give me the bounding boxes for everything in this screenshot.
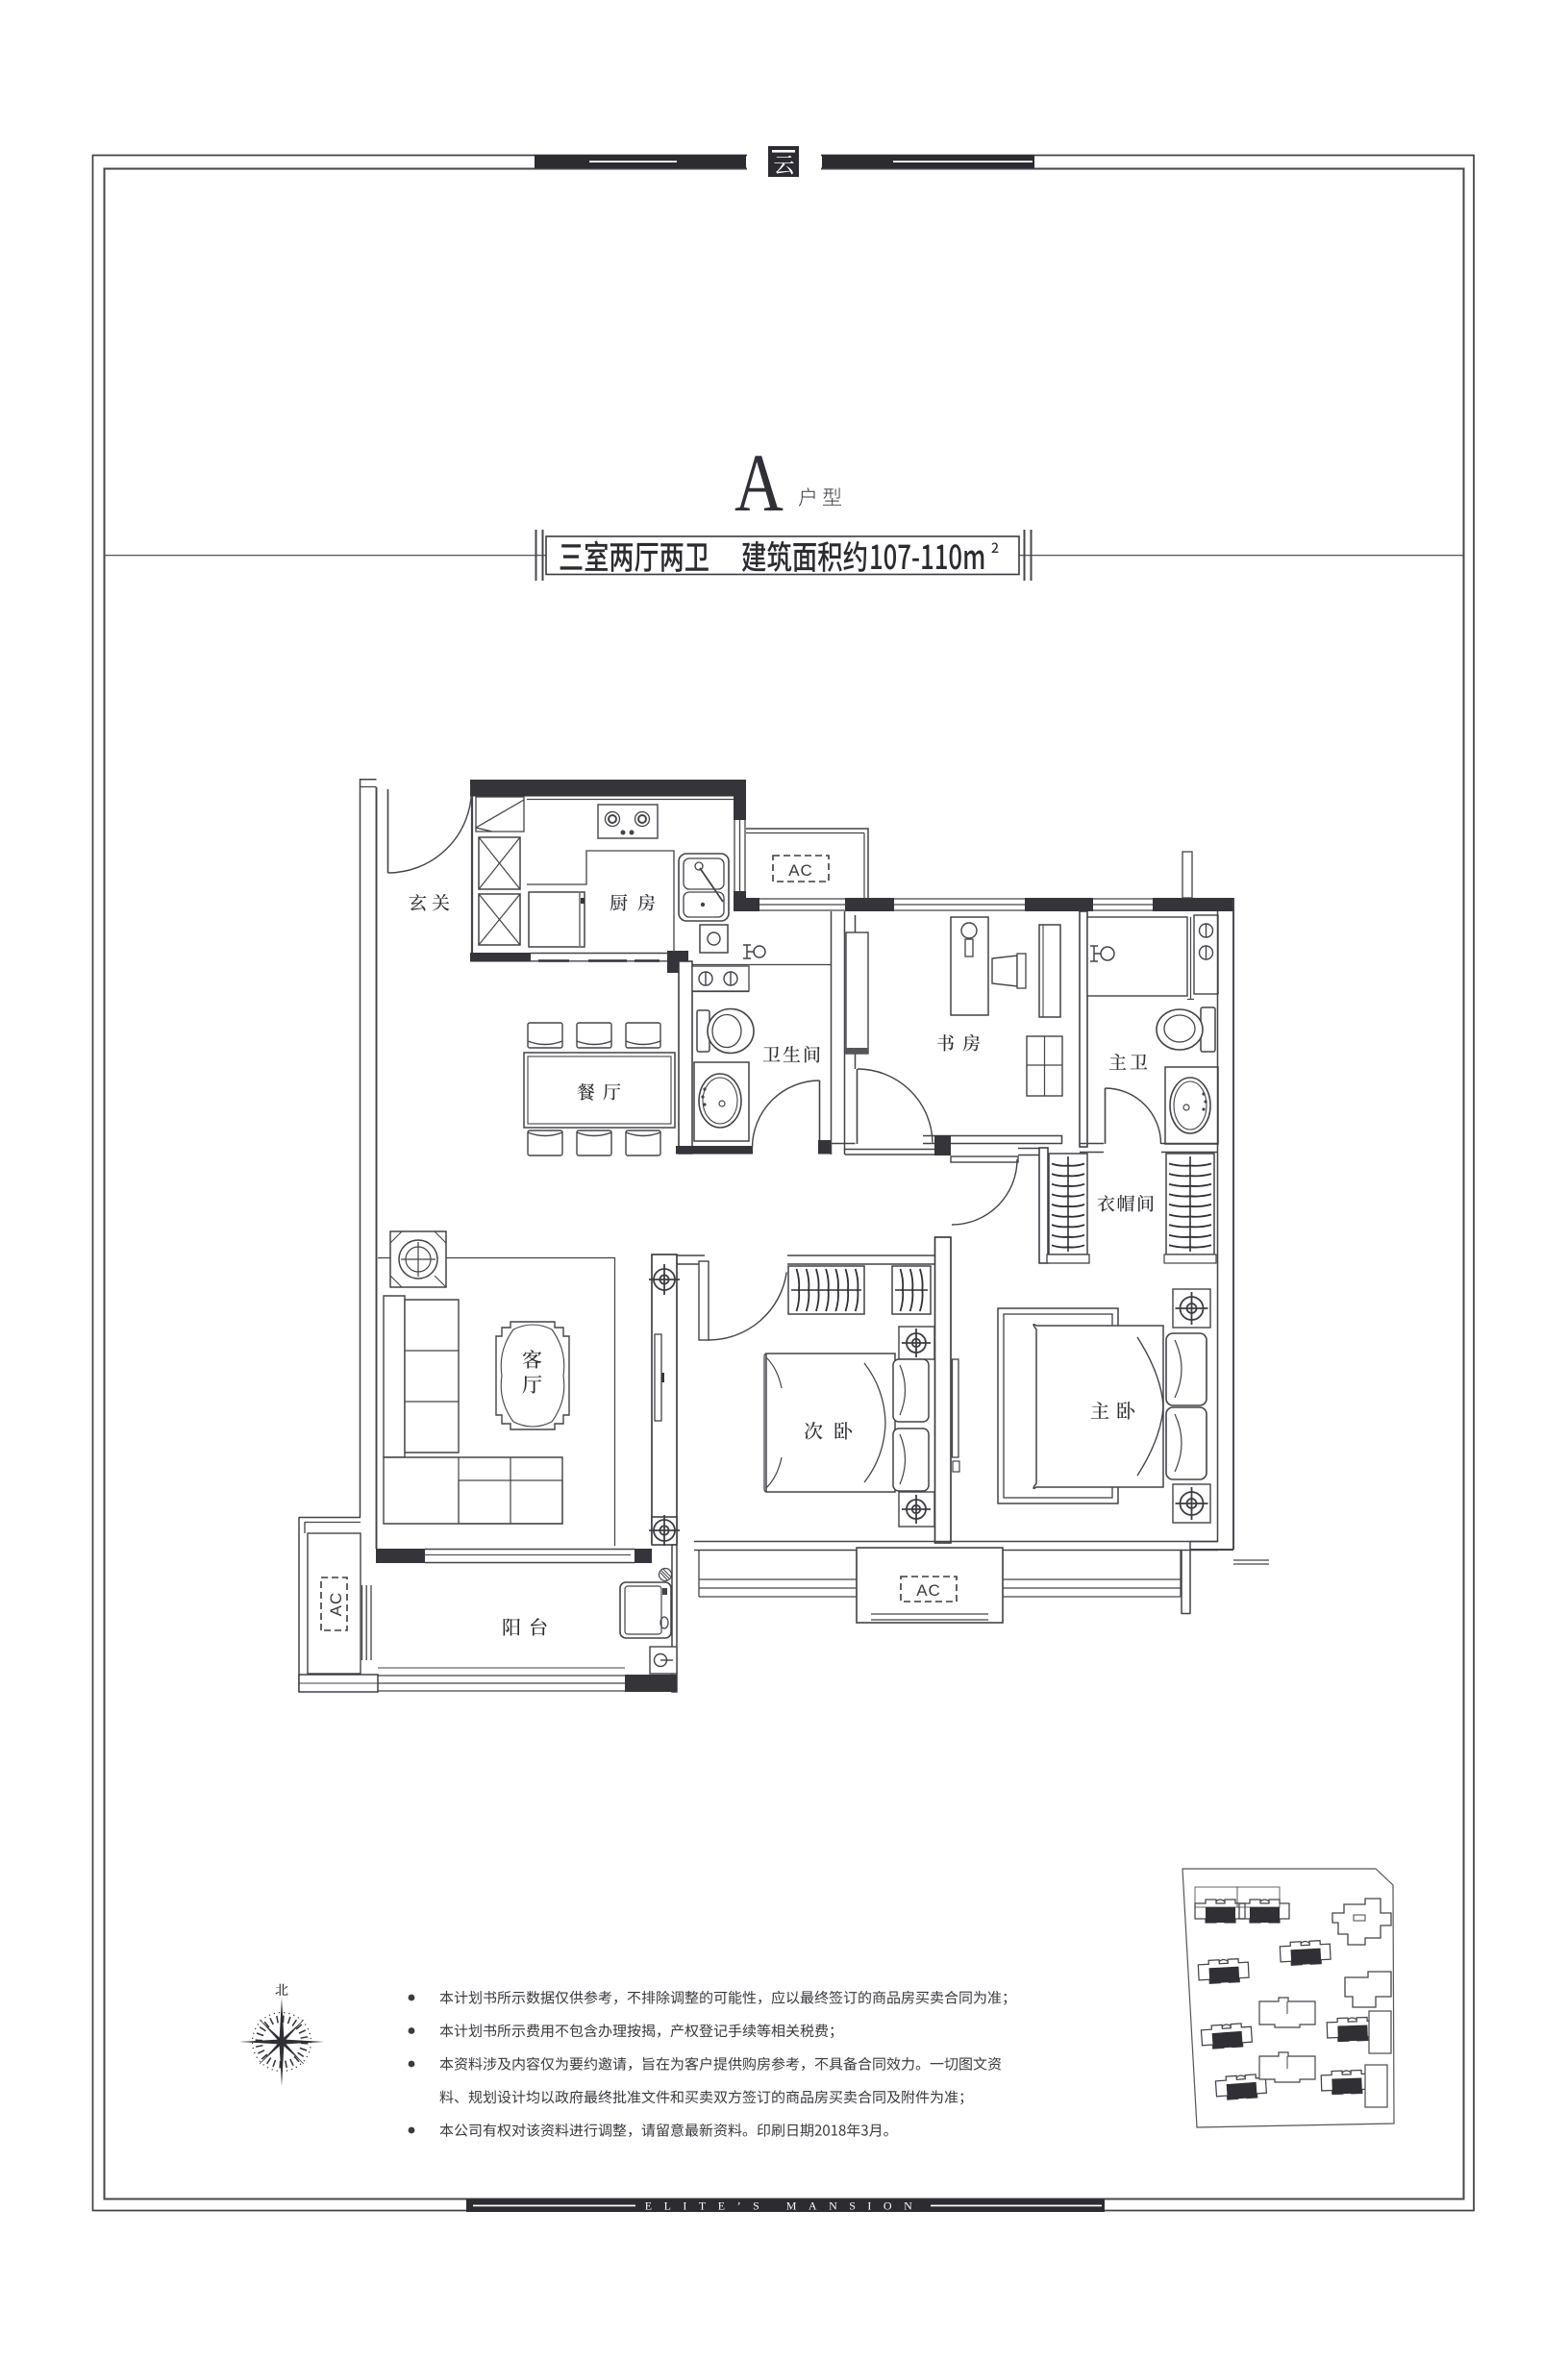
svg-text:A: A [734, 438, 784, 530]
svg-text:AC: AC [327, 1592, 345, 1617]
svg-text:AC: AC [788, 861, 813, 880]
svg-text:ELITE’S MANSION: ELITE’S MANSION [645, 2199, 925, 2213]
svg-text:AC: AC [916, 1581, 941, 1600]
